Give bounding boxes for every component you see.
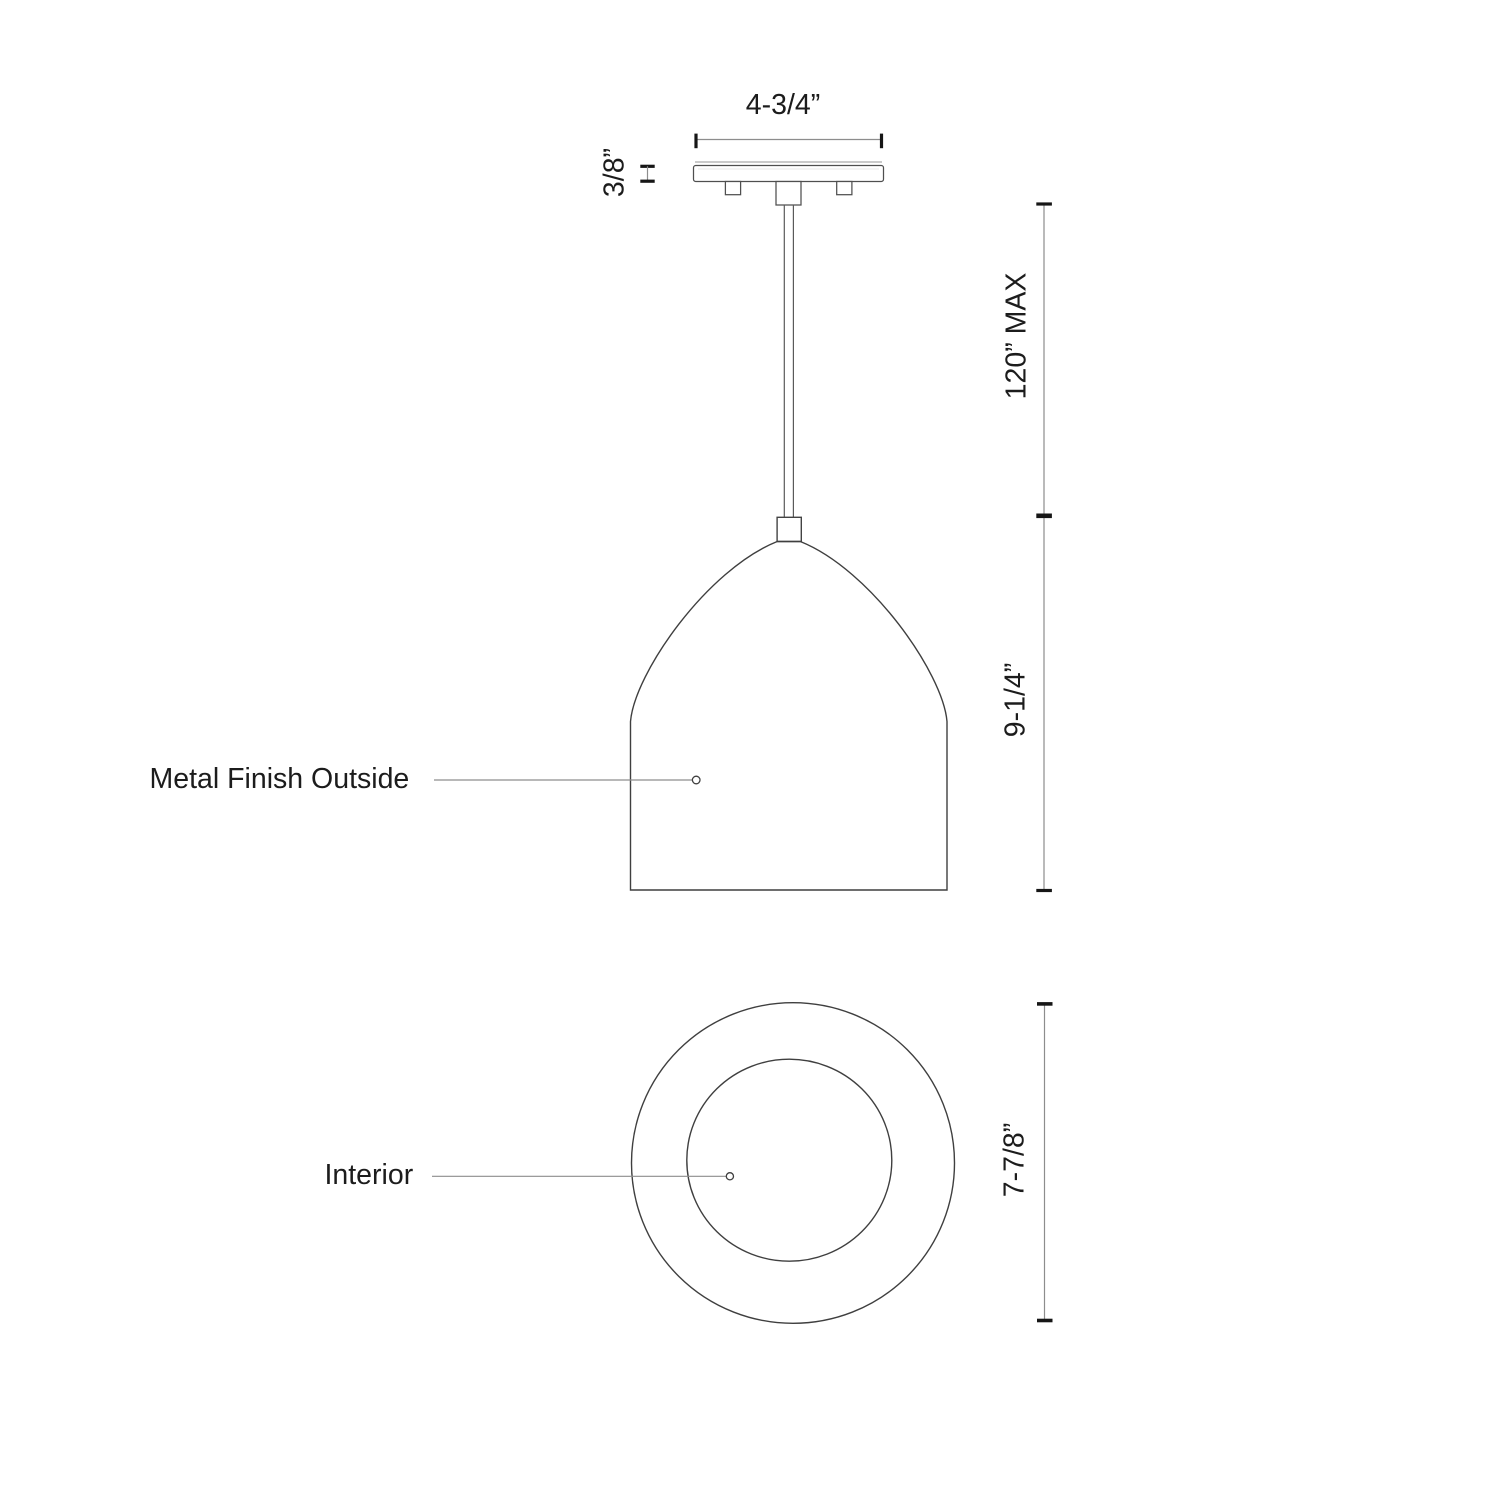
svg-text:7-7/8”: 7-7/8” (999, 1123, 1031, 1197)
svg-text:120” MAX: 120” MAX (1001, 273, 1033, 400)
svg-text:4-3/4”: 4-3/4” (746, 89, 820, 121)
svg-text:Interior: Interior (325, 1159, 414, 1191)
svg-text:Metal Finish Outside: Metal Finish Outside (150, 763, 410, 795)
svg-text:3/8”: 3/8” (599, 148, 631, 197)
svg-text:9-1/4”: 9-1/4” (1000, 663, 1032, 737)
